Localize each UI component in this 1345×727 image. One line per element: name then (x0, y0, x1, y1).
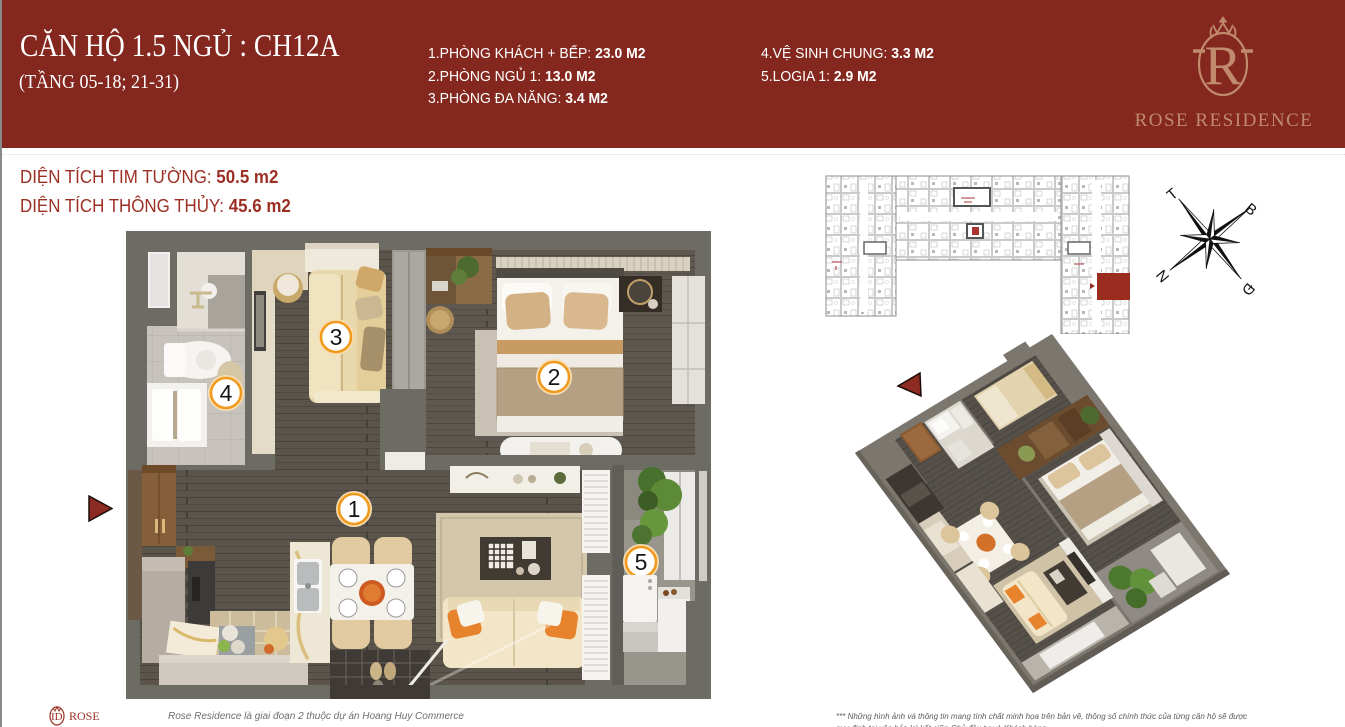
svg-text:T: T (1164, 185, 1182, 204)
svg-text:B: B (1241, 200, 1260, 219)
svg-text:1: 1 (348, 496, 361, 522)
svg-text:ID: ID (51, 711, 63, 723)
svg-text:3: 3 (330, 324, 343, 350)
svg-text:4: 4 (220, 380, 233, 406)
svg-text:2: 2 (548, 364, 561, 390)
svg-text:R: R (1204, 35, 1242, 97)
svg-text:N: N (1154, 266, 1173, 285)
svg-text:5: 5 (635, 549, 648, 575)
svg-text:Đ: Đ (1238, 279, 1258, 298)
svg-text:ROSE RESIDENCE: ROSE RESIDENCE (1135, 110, 1314, 131)
svg-text:ROSE: ROSE (69, 709, 100, 723)
